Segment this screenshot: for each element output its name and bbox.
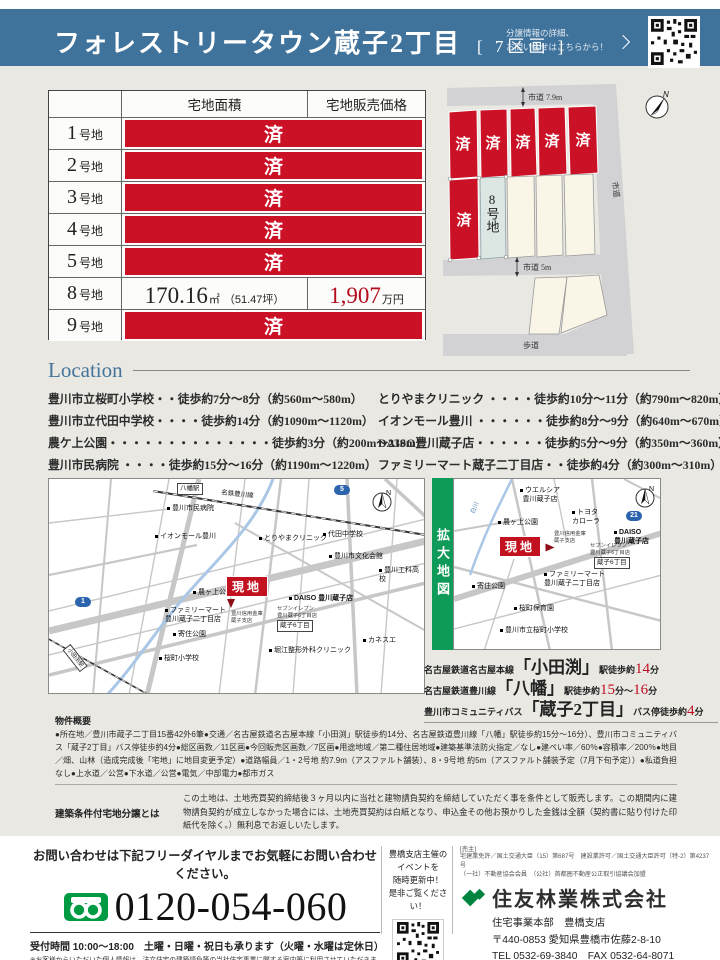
location-list-right: とりやまクリニック ・・・・徒歩約10分～11分（約790m～820m） イオン… bbox=[378, 388, 690, 476]
sold-badge: 済 bbox=[125, 184, 422, 211]
svg-text:N: N bbox=[663, 90, 669, 99]
seller-tag: [売主] bbox=[460, 844, 712, 853]
row-label-lot5: 5号地 bbox=[49, 246, 121, 277]
route-shield: 1 bbox=[75, 597, 91, 607]
company-address: 住宅事業本部 豊橋支店 〒440-0853 愛知県豊橋市佐藤2-8-10 TEL… bbox=[492, 916, 712, 960]
station-label: 八幡駅 bbox=[177, 483, 203, 495]
access-line: 名古屋鉄道名古屋本線「小田渕」駅 徒歩約14分 bbox=[424, 653, 718, 674]
page-title: フォレストリータウン蔵子2丁目 bbox=[54, 23, 461, 60]
poi-label: 豊川信用金庫 蔵子支店 bbox=[554, 531, 586, 544]
price-table: 宅地面積 宅地販売価格 1号地 済 2号地 済 3号地 済 4号地 済 5号地 … bbox=[48, 90, 426, 340]
tel-fax: TEL 0532-69-3840 FAX 0532-64-8071 bbox=[492, 949, 712, 960]
sold-mark: 済 bbox=[485, 134, 501, 152]
table-row: 済 bbox=[122, 246, 425, 277]
poi-label: 豊川信用金庫 蔵子支店 bbox=[231, 611, 263, 624]
list-item: DAISO豊川蔵子店・・・・・・徒歩約5分～9分（約350m～360m） bbox=[378, 432, 690, 454]
list-item: 豊川市立代田中学校・・・・徒歩約14分（約1090m～1120m） bbox=[48, 410, 378, 432]
list-item: 豊川市立桜町小学校・・徒歩約7分～8分（約560m～580m） bbox=[48, 388, 378, 410]
road-top-label: 市道 7.9m bbox=[528, 92, 563, 102]
sold-badge: 済 bbox=[125, 152, 422, 179]
bus-stop-label: 蔵子6丁目 bbox=[277, 620, 313, 632]
sold-mark: 済 bbox=[544, 132, 560, 150]
conditions-body: この土地は、土地売買契約締結後３ヶ月以内に当社と建物請負契約を締結していただく事… bbox=[183, 792, 677, 833]
list-item: イオンモール豊川 ・・・・・・徒歩約8分～9分（約640m～670m） bbox=[378, 410, 690, 432]
poi-label: 桜町小学校 bbox=[159, 655, 199, 664]
poi-label: トヨタ カローラ bbox=[572, 509, 600, 527]
postal-address: 〒440-0853 愛知県豊橋市佐藤2-8-10 bbox=[492, 933, 712, 949]
col-header-price: 宅地販売価格 bbox=[308, 91, 425, 117]
sumitomo-forestry-logo bbox=[460, 885, 486, 911]
list-item: とりやまクリニック ・・・・徒歩約10分～11分（約790m～820m） bbox=[378, 388, 690, 410]
map-roads bbox=[454, 479, 661, 650]
contact-block: お問い合わせは下記フリーダイヤルまでお気軽にお問い合わせください。 0120-0… bbox=[30, 846, 380, 960]
zoom-map-banner: 拡大地図 bbox=[432, 478, 453, 650]
footer: お問い合わせは下記フリーダイヤルまでお気軽にお問い合わせください。 0120-0… bbox=[0, 836, 720, 960]
list-item: 農ケ上公園・・・・・・・・・・・・・・徒歩約3分（約200m～230m） bbox=[48, 432, 378, 454]
event-qr-code bbox=[392, 919, 444, 960]
qr-icon bbox=[651, 19, 697, 65]
poi-label: DAISO 豊川蔵子店 bbox=[289, 595, 353, 604]
site-marker: 現地 bbox=[227, 577, 267, 596]
location-list-left: 豊川市立桜町小学校・・徒歩約7分～8分（約560m～580m） 豊川市立代田中学… bbox=[48, 388, 378, 476]
compass-icon: N bbox=[369, 487, 395, 513]
row-label-lot3: 3号地 bbox=[49, 182, 121, 213]
divider bbox=[381, 846, 382, 934]
compass-icon: N bbox=[646, 90, 669, 118]
poi-label: ファミリーマート 豊川蔵子二丁目店 bbox=[165, 607, 226, 625]
table-row: 済 bbox=[122, 182, 425, 213]
enlarged-map: ウエルシア 豊川蔵子店 白川 農ヶ上公園 トヨタ カローラ 21 DAISO 豊… bbox=[453, 478, 661, 650]
poi-label: セブンイレブン 豊川蔵子6丁目店 bbox=[277, 606, 317, 619]
sold-badge: 済 bbox=[125, 312, 422, 339]
poi-label: 豊川工科高校 bbox=[379, 567, 424, 585]
sold-badge: 済 bbox=[125, 248, 422, 275]
event-block: 豊橋支店主催の イベントを 随時更新中！ 是非ご覧ください！ bbox=[385, 848, 451, 960]
inquiry-text: お問い合わせは下記フリーダイヤルまでお気軽にお問い合わせください。 bbox=[30, 846, 380, 882]
row-label-lot9: 9号地 bbox=[49, 310, 121, 341]
poi-label: 農ヶ上公園 bbox=[498, 519, 538, 528]
svg-text:N: N bbox=[649, 486, 654, 493]
location-section: Location 豊川市立桜町小学校・・徒歩約7分～8分（約560m～580m）… bbox=[48, 358, 690, 476]
access-line: 豊川市コミュニティバス「蔵子2丁目」バス停 徒歩約4分 bbox=[424, 695, 718, 716]
freedial-icon bbox=[63, 891, 109, 923]
row-label-lot2: 2号地 bbox=[49, 150, 121, 181]
lot8-price-cell: 1,907 万円 bbox=[308, 278, 425, 309]
build-conditions: 建築条件付宅地分譲とは この土地は、土地売買契約締結後３ヶ月以内に当社と建物請負… bbox=[55, 784, 677, 840]
poi-label: 豊川市民病院 bbox=[167, 505, 214, 514]
site-pin-icon bbox=[546, 544, 555, 552]
road-bottom-label: 歩道 bbox=[523, 340, 539, 350]
poi-label: 代田中学校 bbox=[323, 531, 363, 540]
route-shield: 5 bbox=[334, 485, 350, 495]
list-item: 豊川市民病院 ・・・・徒歩約15分～16分（約1190m～1220m） bbox=[48, 454, 378, 476]
poi-label: ウエルシア 豊川蔵子店 bbox=[520, 487, 560, 505]
sold-mark: 済 bbox=[456, 211, 472, 229]
sold-mark: 済 bbox=[575, 131, 591, 149]
privacy-note: ※お客様からいただいた個人情報は、注文住宅の建築請負等の当社住宅事業に関する案内… bbox=[30, 956, 380, 960]
sold-badge: 済 bbox=[125, 120, 422, 147]
site-marker: 現地 bbox=[500, 537, 540, 556]
col-header-area: 宅地面積 bbox=[122, 91, 307, 117]
poi-label: 桜町保育園 bbox=[514, 605, 554, 614]
location-heading: Location bbox=[48, 358, 123, 383]
divider bbox=[133, 370, 690, 371]
header-band: フォレストリータウン蔵子2丁目 [ 7区画 ] 分譲情報の詳細、 お問い合せはこ… bbox=[0, 9, 720, 66]
table-corner-cell bbox=[49, 91, 121, 117]
poi-label: ファミリーマート 豊川蔵子二丁目店 bbox=[544, 571, 605, 589]
svg-text:N: N bbox=[386, 490, 391, 497]
divider bbox=[452, 846, 453, 934]
license-line: （一社）不動産協会会員 （公社）首都圏不動産公正取引協議会加盟 bbox=[460, 871, 712, 880]
table-row: 済 bbox=[122, 118, 425, 149]
poi-label: 豊川市立桜町小学校 bbox=[500, 627, 568, 636]
list-item: ファミリーマート蔵子二丁目店・・徒歩約4分（約300m～310m） bbox=[378, 454, 690, 476]
chevron-right-icon bbox=[616, 35, 630, 49]
overview-heading: 物件概要 bbox=[55, 714, 677, 727]
site-plan: 済 済 済 済 済 済 8号地 市道 7.9m 市道 市道 5m 歩道 bbox=[435, 82, 717, 358]
lot8-label: 8号地 bbox=[485, 192, 500, 233]
compass-icon: N bbox=[632, 483, 658, 509]
sold-mark: 済 bbox=[455, 135, 471, 153]
division: 住宅事業本部 豊橋支店 bbox=[492, 916, 712, 932]
flyer-page: フォレストリータウン蔵子2丁目 [ 7区画 ] 分譲情報の詳細、 お問い合せはこ… bbox=[0, 0, 720, 960]
sold-badge: 済 bbox=[125, 216, 422, 243]
qr-icon bbox=[397, 922, 439, 960]
conditions-label: 建築条件付宅地分譲とは bbox=[55, 792, 183, 833]
company-block: [売主] 宅建業免許／国土交通大臣（15）第687号 建設業許可／国土交通大臣許… bbox=[460, 844, 712, 960]
route-shield: 21 bbox=[626, 511, 642, 521]
poi-label: 寄住公園 bbox=[173, 631, 206, 640]
poi-label: セブンイレブン 豊川蔵子6丁目店 bbox=[590, 543, 630, 556]
table-row: 済 bbox=[122, 310, 425, 341]
event-text: 豊橋支店主催の イベントを 随時更新中！ 是非ご覧ください！ bbox=[385, 848, 451, 913]
area-map: 八幡駅 名鉄豊川線 豊川市民病院 5 イオンモール豊川 とりやまクリニック 代田… bbox=[48, 478, 425, 694]
lot8-area-cell: 170.16 ㎡ （51.47坪） bbox=[122, 278, 307, 309]
row-label-lot4: 4号地 bbox=[49, 214, 121, 245]
poi-label: とりやまクリニック bbox=[259, 535, 327, 544]
phone-number: 0120-054-060 bbox=[115, 883, 348, 930]
row-label-lot8: 8号地 bbox=[49, 278, 121, 309]
top-margin bbox=[0, 0, 720, 9]
site-pin-icon bbox=[227, 599, 235, 608]
overview-body: ●所在地／豊川市蔵子二丁目15番42外6筆●交通／名古屋鉄道名古屋本線「小田渕」… bbox=[55, 729, 677, 781]
company-name: 住友林業株式会社 bbox=[492, 883, 668, 912]
poi-label: カネスエ bbox=[363, 637, 396, 646]
poi-label: イオンモール豊川 bbox=[155, 533, 216, 542]
poi-label: 堀江整形外科クリニック bbox=[269, 647, 351, 656]
poi-label: 寄住公園 bbox=[472, 583, 505, 592]
row-label-lot1: 1号地 bbox=[49, 118, 121, 149]
property-overview: 物件概要 ●所在地／豊川市蔵子二丁目15番42外6筆●交通／名古屋鉄道名古屋本線… bbox=[55, 714, 677, 781]
license-line: 宅建業免許／国土交通大臣（15）第687号 建設業許可／国土交通大臣許可（特-2… bbox=[460, 853, 712, 871]
poi-label: 豊川市文化会館 bbox=[329, 553, 383, 562]
table-row: 済 bbox=[122, 150, 425, 181]
qr-note: 分譲情報の詳細、 お問い合せはこちらから！ bbox=[506, 27, 608, 54]
road-mid-label: 市道 5m bbox=[523, 262, 552, 272]
bus-stop-label: 蔵子6丁目 bbox=[594, 557, 630, 569]
transit-access: 名古屋鉄道名古屋本線「小田渕」駅 徒歩約14分 名古屋鉄道豊川線「八幡」駅 徒歩… bbox=[424, 653, 718, 723]
site-plan-drawing: 済 済 済 済 済 済 8号地 市道 7.9m 市道 市道 5m 歩道 bbox=[435, 82, 717, 358]
header-qr-code bbox=[648, 16, 700, 68]
sold-mark: 済 bbox=[515, 133, 531, 151]
table-row: 済 bbox=[122, 214, 425, 245]
office-hours: 受付時間 10:00～18:00 土曜・日曜・祝日も承ります（火曜・水曜は定休日… bbox=[30, 938, 380, 953]
